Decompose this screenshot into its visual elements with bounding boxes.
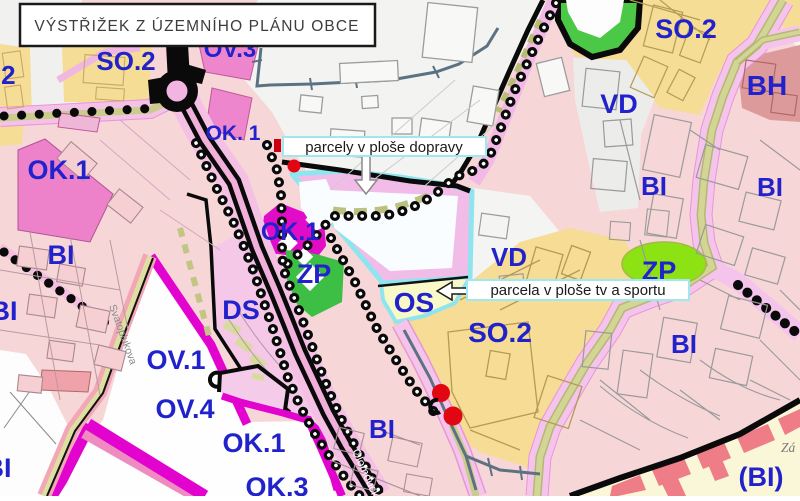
- svg-text:BI: BI: [0, 453, 12, 483]
- svg-text:parcela v ploše tv a sportu: parcela v ploše tv a sportu: [490, 282, 665, 299]
- svg-text:BI: BI: [48, 240, 75, 270]
- svg-text:SO.2: SO.2: [96, 46, 155, 76]
- svg-text:BI: BI: [671, 329, 697, 359]
- svg-text:SO.2: SO.2: [655, 14, 717, 44]
- svg-text:VÝSTŘIŽEK Z ÚZEMNÍHO PLÁNU OBC: VÝSTŘIŽEK Z ÚZEMNÍHO PLÁNU OBCE: [34, 18, 359, 35]
- svg-text:OK.1: OK.1: [222, 428, 285, 458]
- svg-text:OK. 1: OK. 1: [206, 122, 261, 145]
- svg-text:SO.2: SO.2: [0, 60, 16, 90]
- svg-text:BI: BI: [757, 172, 783, 202]
- svg-text:VD: VD: [491, 242, 527, 272]
- svg-text:SO.2: SO.2: [468, 317, 532, 348]
- svg-text:VD: VD: [600, 89, 638, 119]
- svg-text:OS: OS: [394, 287, 434, 318]
- svg-text:BH: BH: [747, 70, 787, 101]
- svg-text:Zá: Zá: [781, 440, 796, 455]
- svg-text:OV.4: OV.4: [155, 394, 214, 424]
- svg-text:OK.1: OK.1: [261, 218, 319, 246]
- svg-text:OV.1: OV.1: [146, 345, 205, 375]
- svg-text:BI: BI: [369, 414, 395, 444]
- svg-text:(BI): (BI): [739, 462, 784, 492]
- svg-text:OK.3: OK.3: [245, 472, 308, 496]
- svg-text:parcely v ploše dopravy: parcely v ploše dopravy: [305, 139, 463, 156]
- svg-text:BI: BI: [641, 171, 667, 201]
- svg-text:DS: DS: [222, 295, 260, 325]
- svg-text:OK.1: OK.1: [27, 155, 90, 185]
- svg-text:ZP: ZP: [297, 259, 332, 289]
- svg-text:BI: BI: [0, 296, 18, 326]
